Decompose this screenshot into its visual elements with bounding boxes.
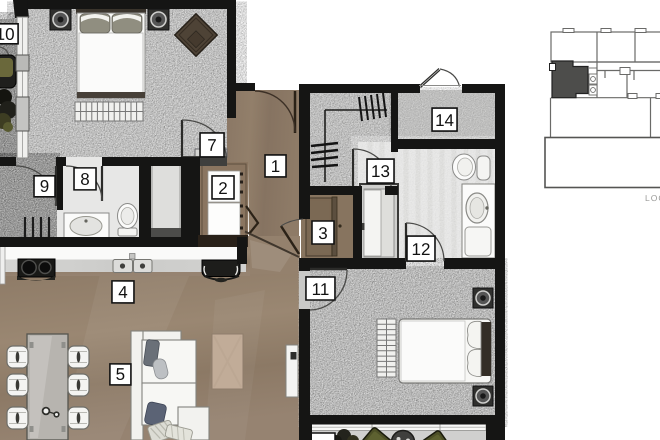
svg-text:1: 1	[271, 157, 280, 176]
svg-text:12: 12	[412, 240, 431, 259]
svg-text:14: 14	[435, 111, 454, 130]
svg-text:11: 11	[312, 280, 330, 299]
svg-text:4: 4	[118, 283, 127, 302]
svg-text:9: 9	[40, 177, 49, 196]
svg-text:2: 2	[218, 179, 227, 198]
svg-text:5: 5	[116, 365, 125, 384]
svg-text:LOCATION: LOCATION	[645, 193, 660, 203]
svg-text:13: 13	[371, 162, 390, 181]
svg-text:10: 10	[0, 25, 15, 44]
svg-text:8: 8	[80, 170, 89, 189]
svg-text:3: 3	[318, 224, 327, 243]
svg-text:7: 7	[207, 136, 216, 155]
